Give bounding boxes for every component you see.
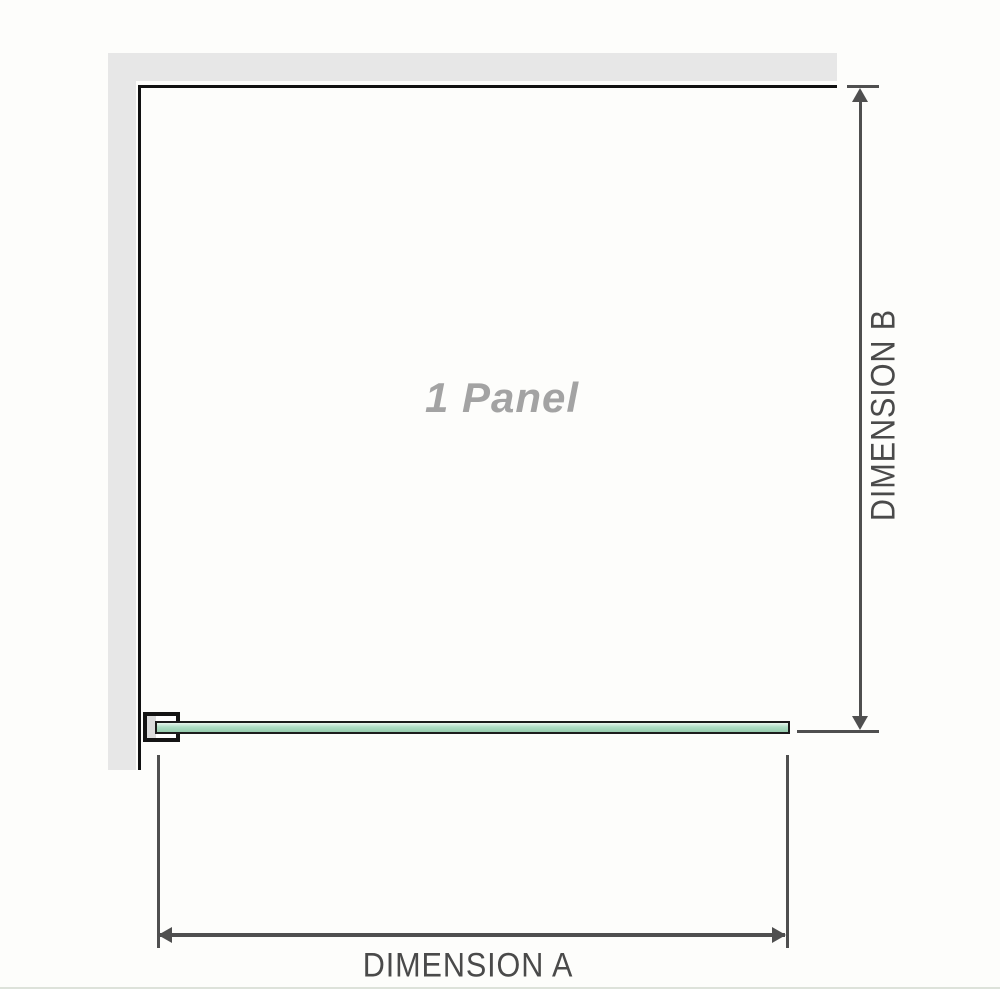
dim-b-arrowhead-up-icon (852, 88, 868, 102)
dim-b-label: DIMENSION B (865, 309, 904, 521)
panel-count-label: 1 Panel (425, 374, 579, 422)
panel-outline-top (138, 85, 837, 88)
dim-a-line (160, 933, 785, 937)
panel-outline-left (138, 85, 141, 770)
glass-panel-plan-view (155, 721, 790, 734)
image-bottom-strip (0, 989, 1000, 1000)
dim-a-extension-line-right (786, 755, 789, 948)
dim-a-arrowhead-left-icon (158, 927, 172, 943)
dim-a-arrowhead-right-icon (772, 927, 786, 943)
dim-b-arrowhead-down-icon (852, 716, 868, 730)
dim-a-label: DIMENSION A (363, 947, 574, 986)
wall-top-segment (108, 53, 837, 81)
shower-panel-dimension-diagram: 1 Panel DIMENSION B DIMENSION A (0, 0, 1000, 1000)
dim-b-line (859, 95, 862, 722)
dim-b-extension-tick-bottom (797, 730, 879, 733)
dim-a-extension-line-left (157, 755, 160, 948)
wall-left-segment (108, 53, 136, 770)
